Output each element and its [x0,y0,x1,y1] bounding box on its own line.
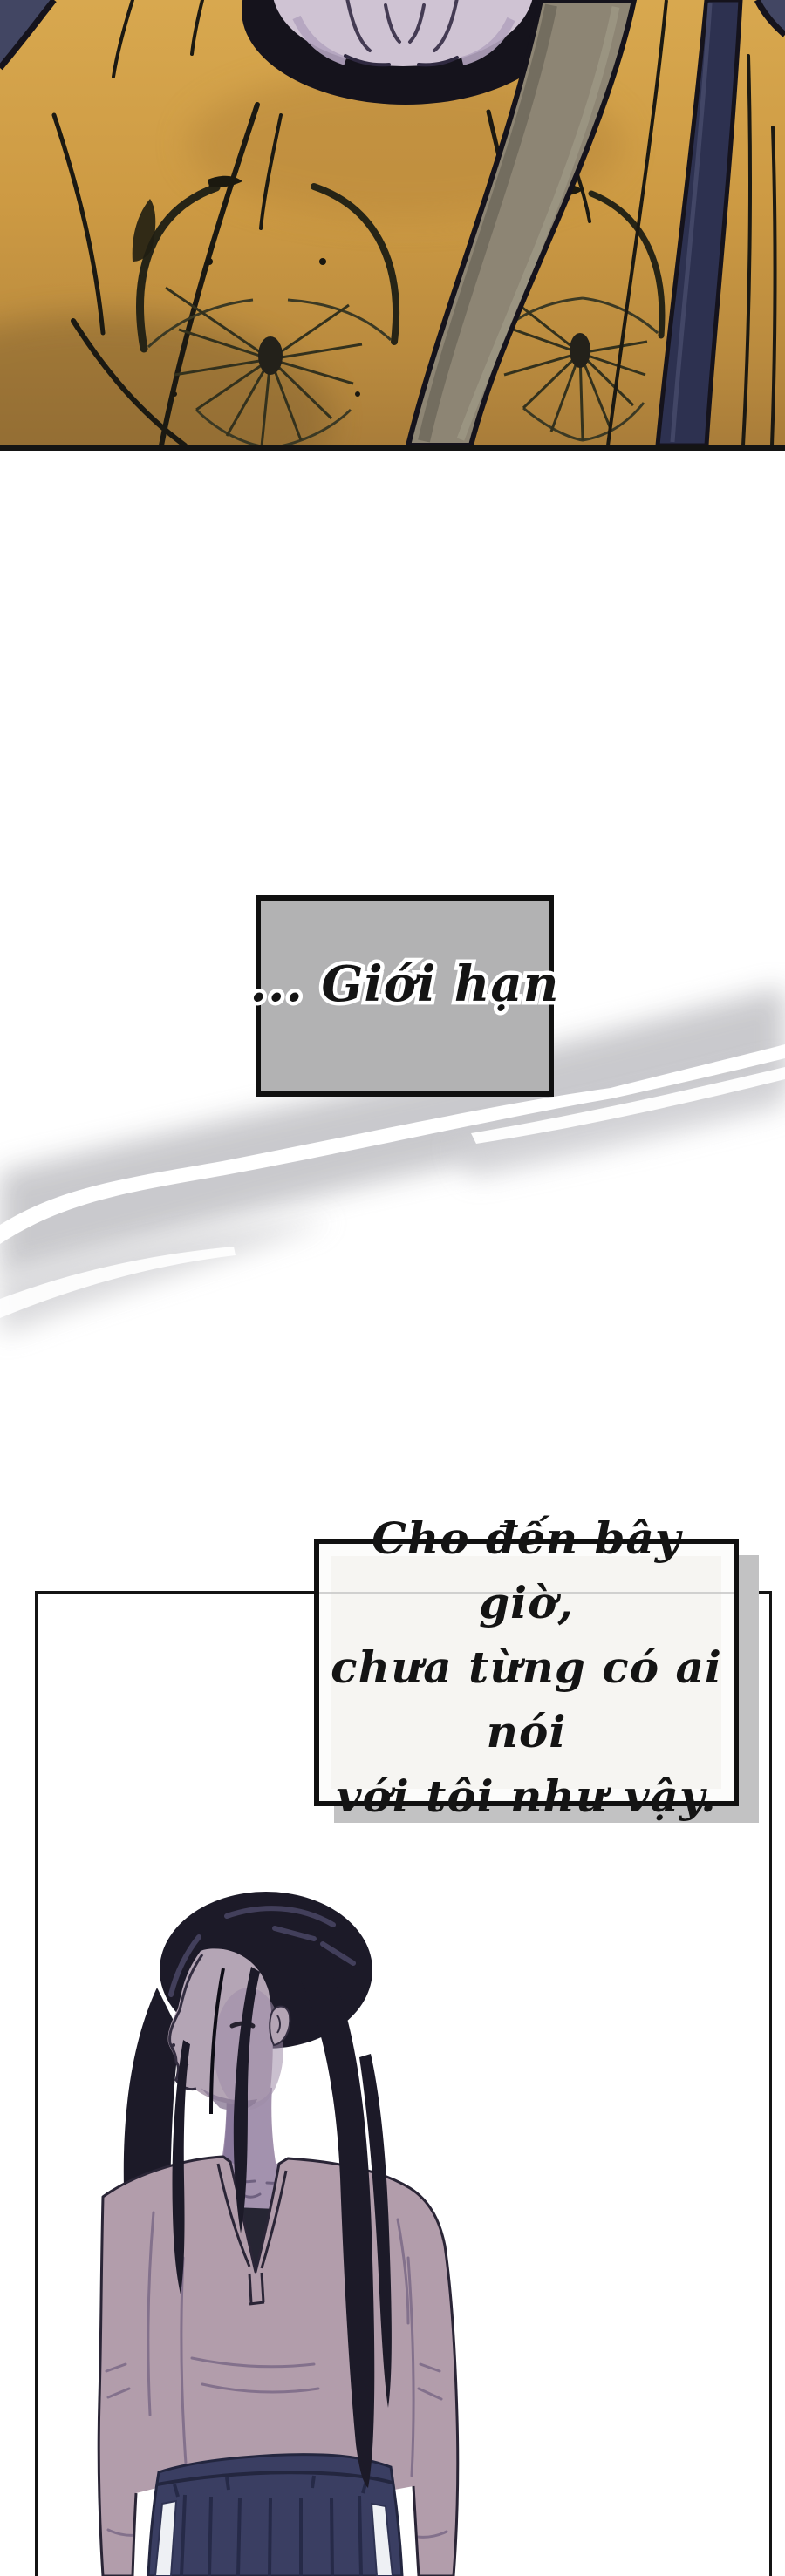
dialogue-line: với tôi như vậy. [336,1764,716,1829]
narration-box: ... Giới hạn ... Giới hạn [256,895,554,1097]
comic-page: ... Giới hạn ... Giới hạn Cho đến bây gi… [0,0,785,2576]
dialogue-line: Cho đến bây giờ, [319,1506,734,1635]
dialogue-line: chưa từng có ai nói [319,1635,734,1764]
panel-top-artwork [0,0,785,451]
dialogue-text: Cho đến bây giờ, chưa từng có ai nói với… [319,1506,734,1829]
dialogue-box: Cho đến bây giờ, chưa từng có ai nói với… [314,1539,739,1806]
woman-figure [52,1883,506,2576]
narration-text: ... Giới hạn ... Giới hạn [250,954,560,1015]
panel-top-border-bottom [0,445,785,451]
